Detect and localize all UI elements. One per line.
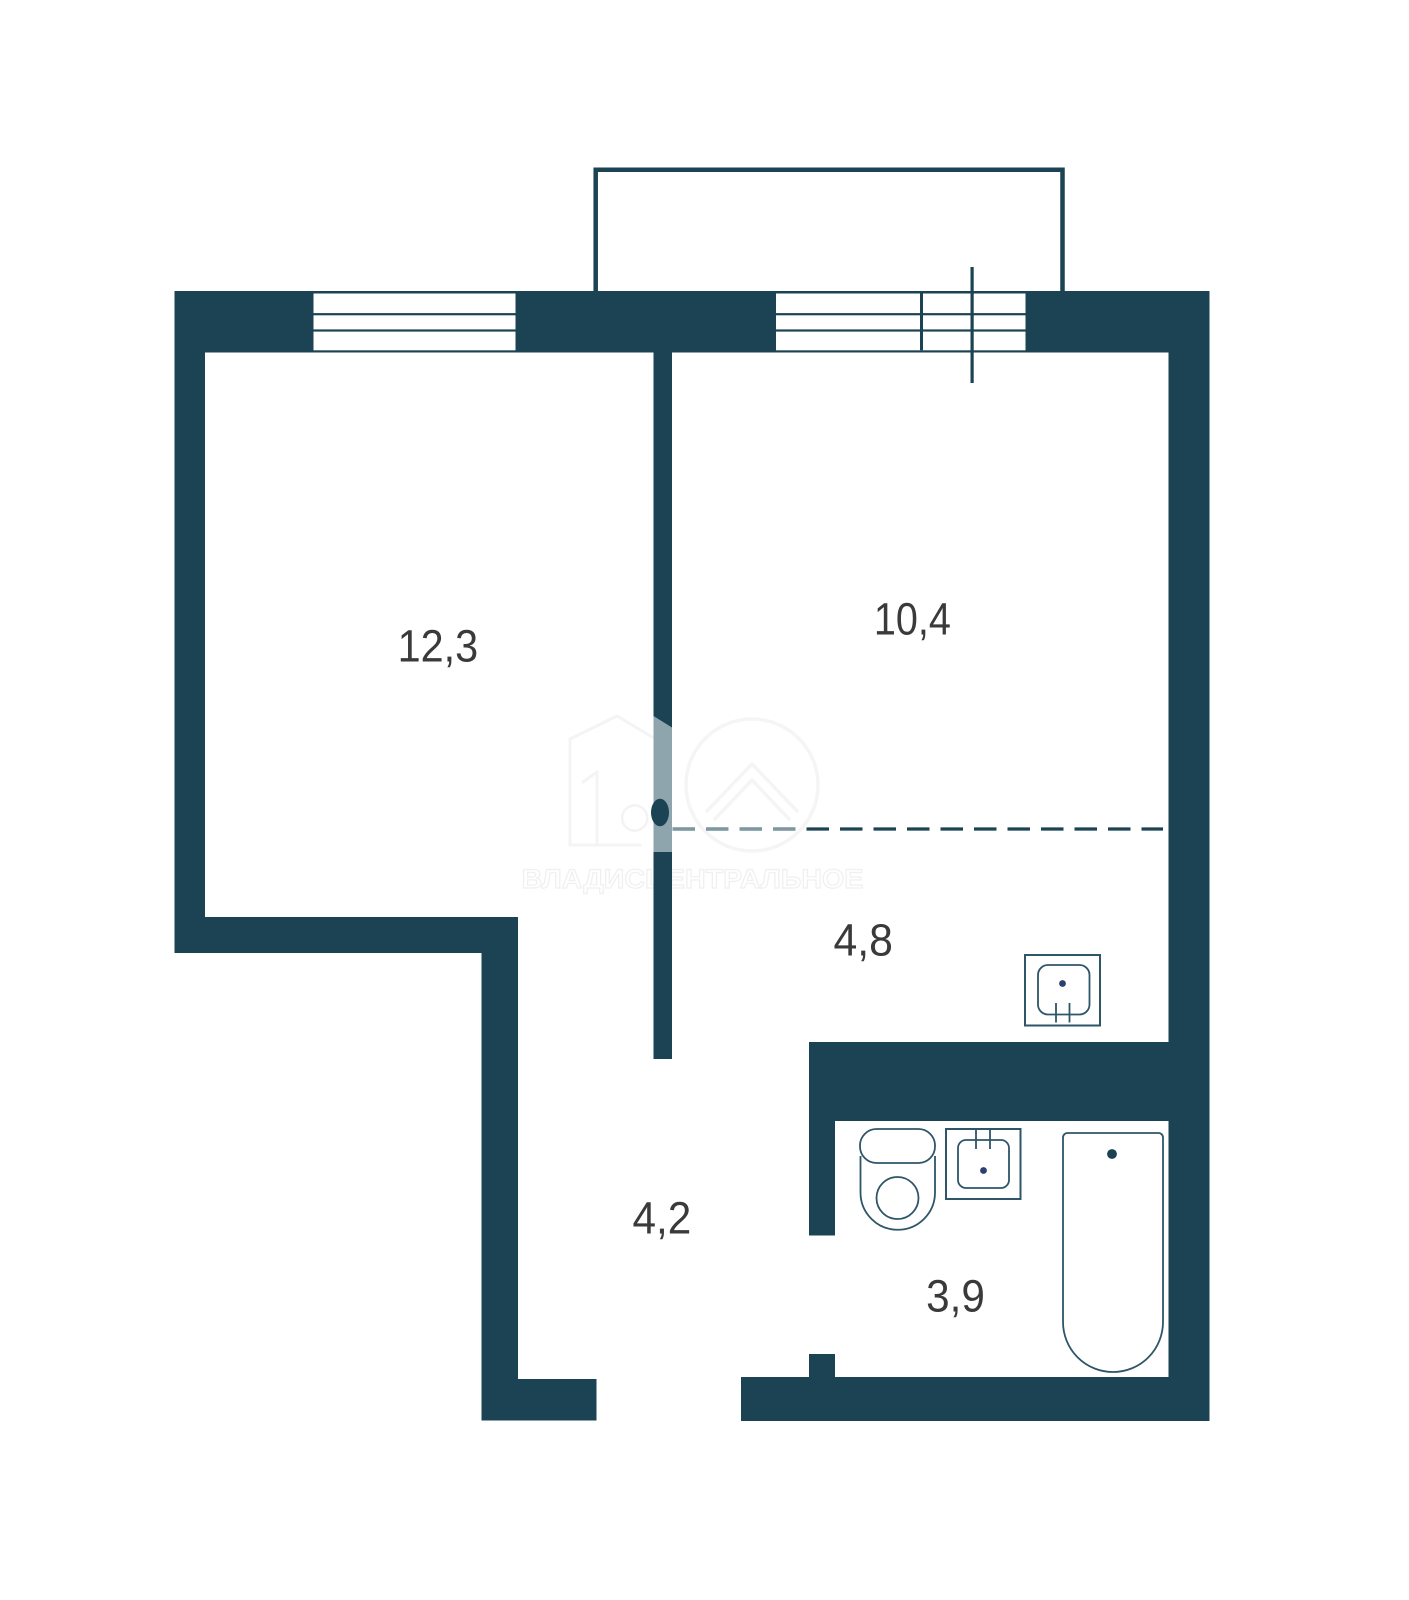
svg-text:12,3: 12,3 xyxy=(398,622,479,672)
svg-text:4,2: 4,2 xyxy=(633,1193,692,1243)
svg-text:ВЛАДИСЦЕНТРАЛЬНОЕ: ВЛАДИСЦЕНТРАЛЬНОЕ xyxy=(522,864,864,894)
svg-text:10,4: 10,4 xyxy=(874,594,951,644)
svg-text:3,9: 3,9 xyxy=(926,1271,985,1321)
svg-text:4,8: 4,8 xyxy=(833,916,892,966)
